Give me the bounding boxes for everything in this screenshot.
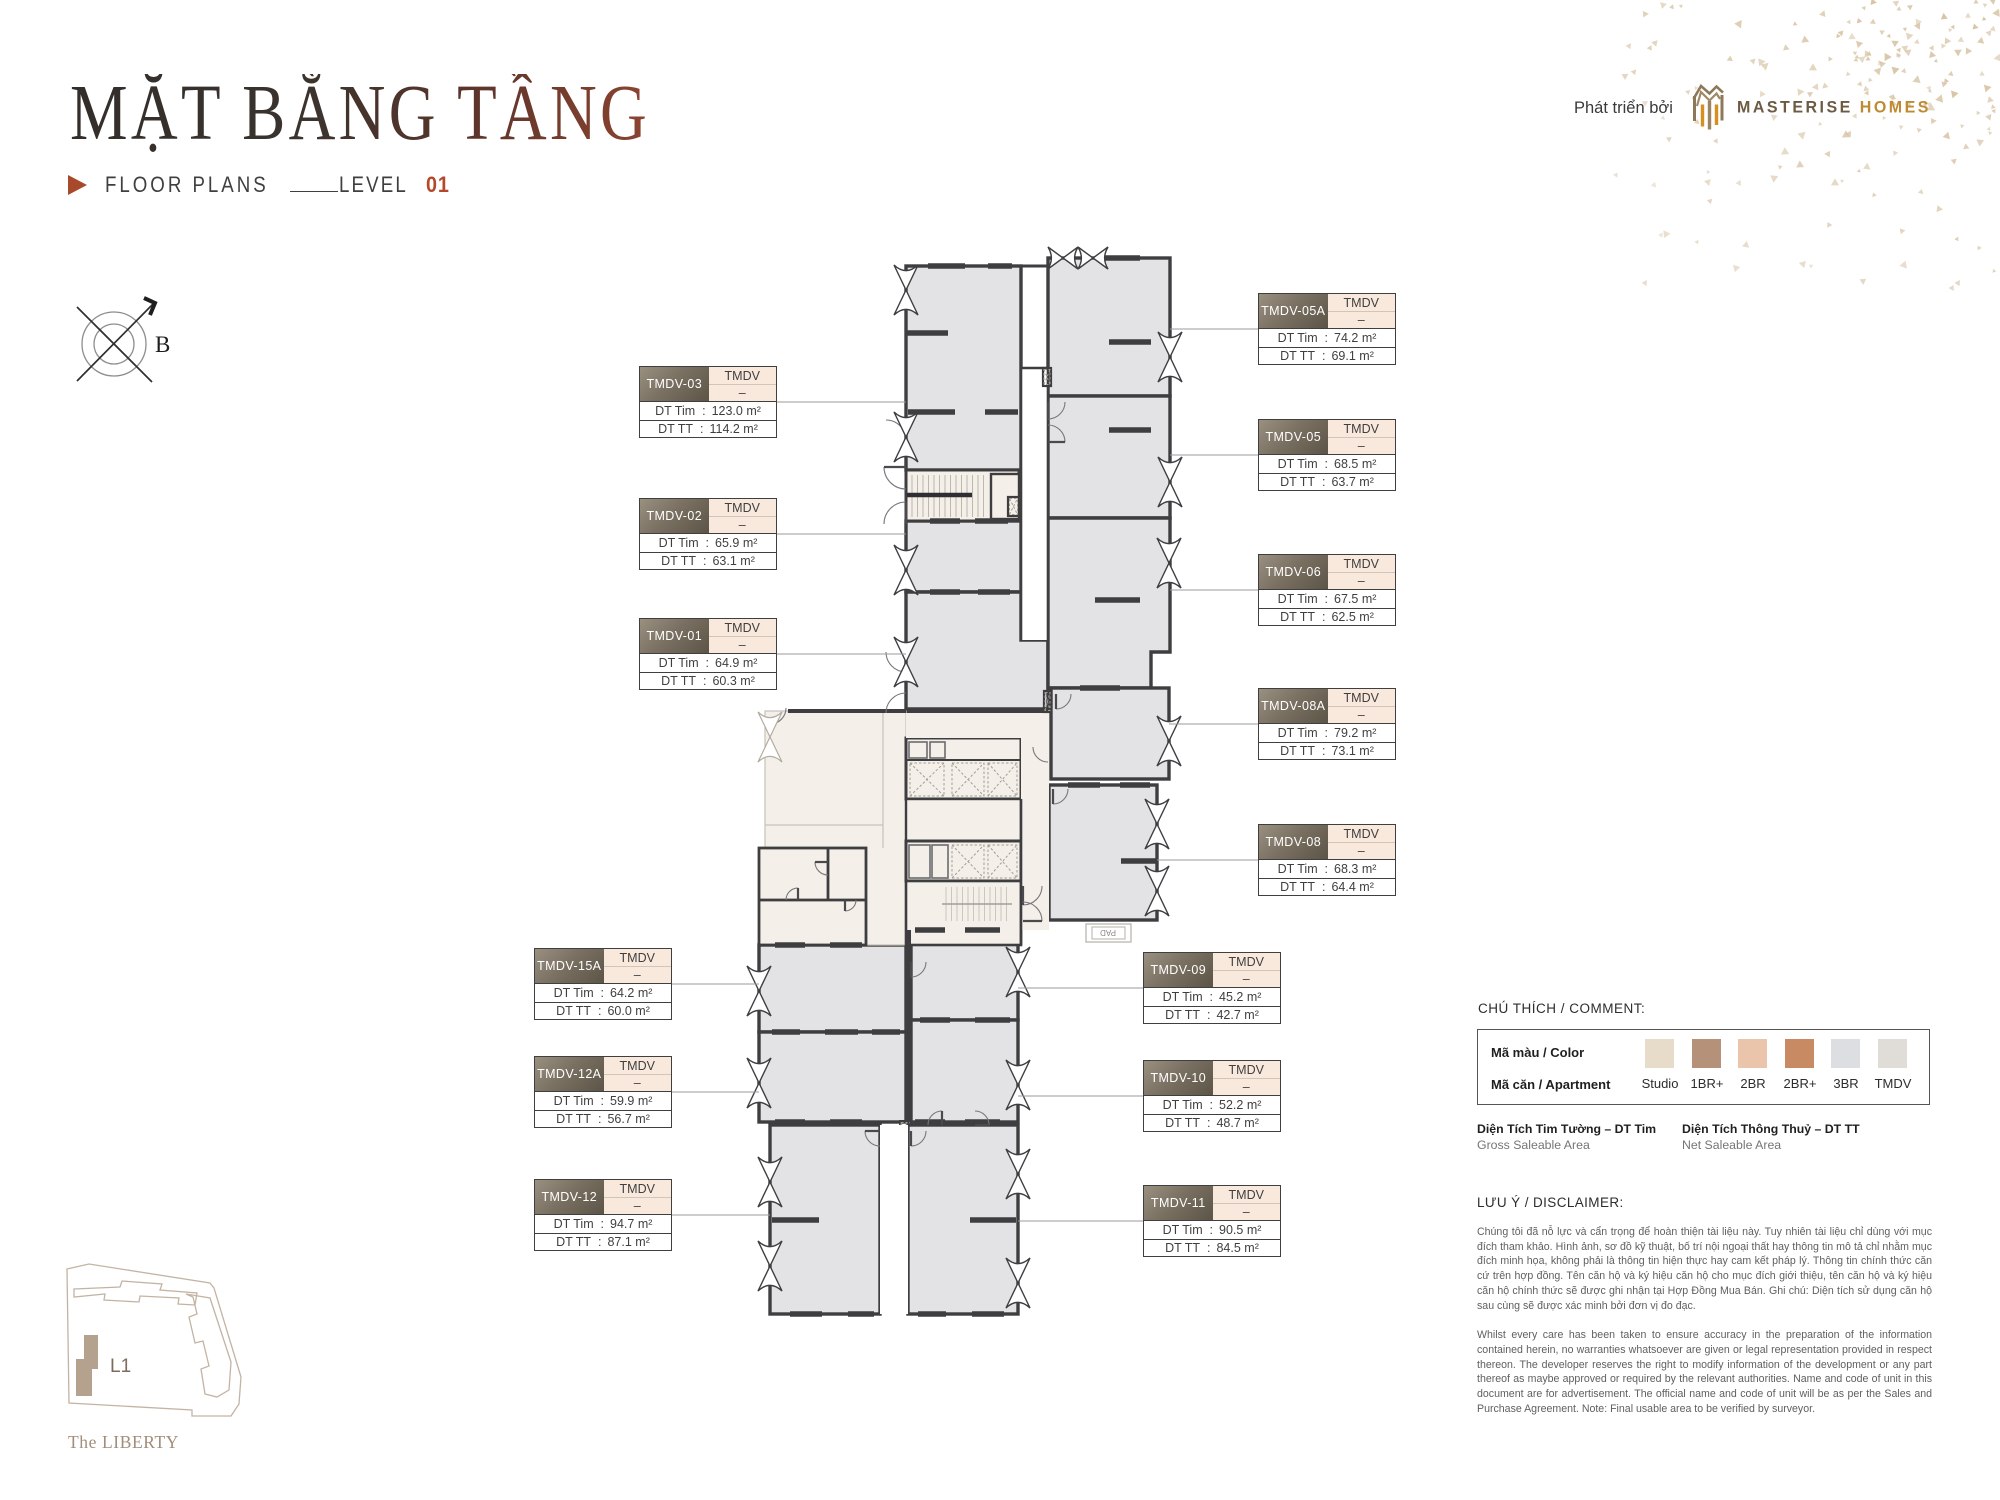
svg-text:L1: L1 (110, 1356, 131, 1377)
svg-text:B: B (155, 332, 170, 357)
svg-text:PAD: PAD (1100, 928, 1116, 937)
